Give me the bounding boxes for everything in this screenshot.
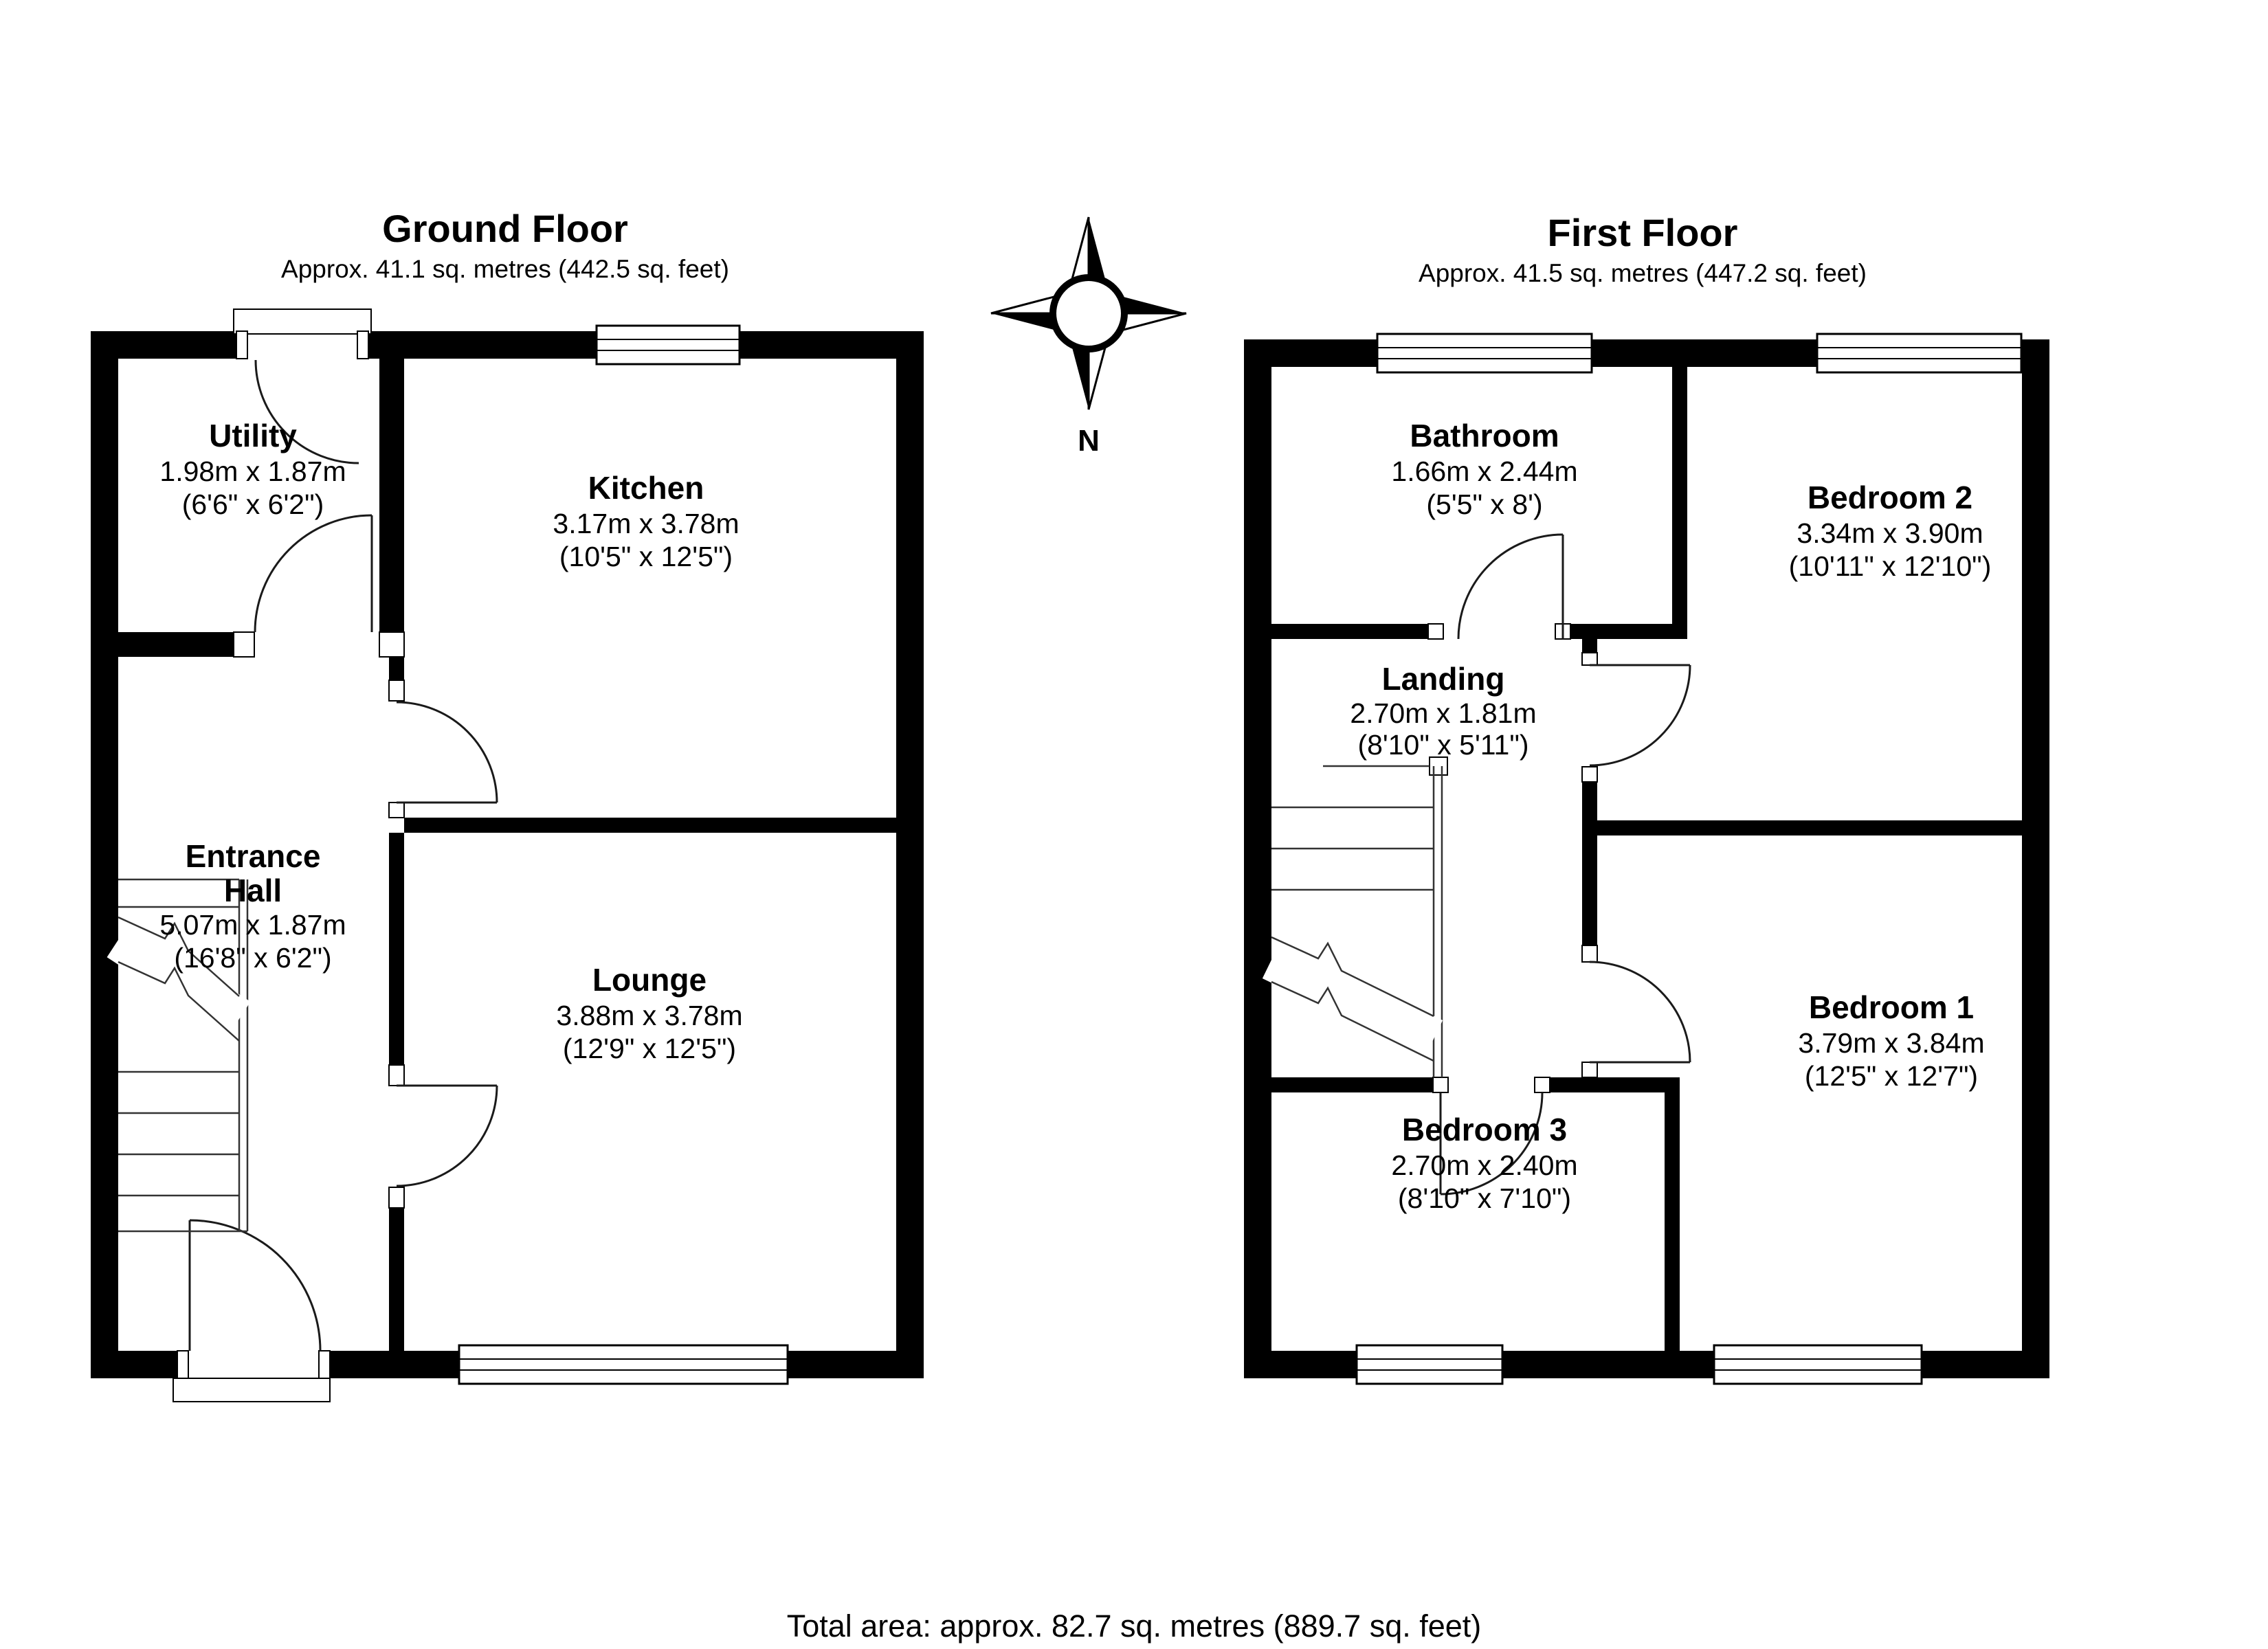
bedroom2-window xyxy=(1817,334,2021,372)
svg-text:1.66m x 2.44m: 1.66m x 2.44m xyxy=(1391,456,1577,487)
front-door xyxy=(190,1220,320,1351)
room-label-entrance-hall: Entrance Hall 5.07m x 1.87m (16'8" x 6'2… xyxy=(159,838,346,974)
room-label-bathroom: Bathroom 1.66m x 2.44m (5'5" x 8') xyxy=(1391,418,1577,520)
first-floor-stairs xyxy=(1271,766,1442,1077)
svg-text:3.17m x 3.78m: 3.17m x 3.78m xyxy=(553,508,739,539)
room-label-utility: Utility 1.98m x 1.87m (6'6" x 6'2") xyxy=(159,418,346,520)
first-floor-area: Approx. 41.5 sq. metres (447.2 sq. feet) xyxy=(1419,259,1867,287)
lounge-door xyxy=(397,1086,497,1186)
svg-text:(8'10" x 5'11"): (8'10" x 5'11") xyxy=(1357,729,1528,761)
svg-text:(12'5" x 12'7"): (12'5" x 12'7") xyxy=(1805,1060,1978,1092)
bedroom2-door xyxy=(1590,665,1690,765)
kitchen-window xyxy=(597,326,740,364)
room-label-landing: Landing 2.70m x 1.81m (8'10" x 5'11") xyxy=(1350,661,1536,761)
ground-floor-title: Ground Floor xyxy=(382,207,628,250)
room-label-lounge: Lounge 3.88m x 3.78m (12'9" x 12'5") xyxy=(556,962,742,1064)
compass-north-label: N xyxy=(1078,424,1100,458)
front-door-frame xyxy=(173,1378,330,1402)
svg-text:Lounge: Lounge xyxy=(592,962,707,998)
room-label-bedroom2: Bedroom 2 3.34m x 3.90m (10'11" x 12'10"… xyxy=(1789,480,1992,582)
utility-exterior-door-frame xyxy=(234,309,371,334)
bedroom1-window xyxy=(1714,1345,1922,1384)
svg-text:Landing: Landing xyxy=(1382,661,1505,697)
svg-text:(5'5" x 8'): (5'5" x 8') xyxy=(1426,489,1542,520)
svg-text:5.07m x 1.87m: 5.07m x 1.87m xyxy=(159,909,346,941)
ground-floor-area: Approx. 41.1 sq. metres (442.5 sq. feet) xyxy=(281,255,729,283)
room-label-kitchen: Kitchen 3.17m x 3.78m (10'5" x 12'5") xyxy=(553,470,739,572)
bathroom-door xyxy=(1458,535,1563,639)
svg-text:(10'11" x 12'10"): (10'11" x 12'10") xyxy=(1789,550,1992,582)
compass-rose-icon: N xyxy=(991,217,1186,458)
svg-text:(10'5" x 12'5"): (10'5" x 12'5") xyxy=(559,541,733,572)
svg-text:Bedroom 3: Bedroom 3 xyxy=(1402,1112,1567,1147)
svg-text:3.88m x 3.78m: 3.88m x 3.78m xyxy=(556,1000,742,1031)
kitchen-door xyxy=(397,702,497,803)
svg-text:1.98m x 1.87m: 1.98m x 1.87m xyxy=(159,456,346,487)
svg-text:Kitchen: Kitchen xyxy=(588,470,704,506)
floorplan-drawing: Ground Floor Approx. 41.1 sq. metres (44… xyxy=(0,0,2268,1649)
svg-text:(8'10" x 7'10"): (8'10" x 7'10") xyxy=(1398,1182,1571,1214)
utility-door xyxy=(255,515,372,632)
room-label-bedroom1: Bedroom 1 3.79m x 3.84m (12'5" x 12'7") xyxy=(1798,989,1984,1092)
first-floor-title: First Floor xyxy=(1548,211,1738,254)
svg-text:Hall: Hall xyxy=(224,873,282,908)
floorplan-page: Ground Floor Approx. 41.1 sq. metres (44… xyxy=(0,0,2268,1649)
svg-text:Bathroom: Bathroom xyxy=(1410,418,1559,453)
svg-text:(12'9" x 12'5"): (12'9" x 12'5") xyxy=(563,1033,736,1064)
bedroom1-door xyxy=(1590,962,1690,1062)
svg-text:Bedroom 2: Bedroom 2 xyxy=(1808,480,1972,515)
total-area-label: Total area: approx. 82.7 sq. metres (889… xyxy=(787,1608,1482,1644)
bathroom-window xyxy=(1377,334,1592,372)
svg-text:2.70m x 1.81m: 2.70m x 1.81m xyxy=(1350,697,1536,729)
ground-floor-plan: Ground Floor Approx. 41.1 sq. metres (44… xyxy=(91,207,924,1402)
bedroom3-window xyxy=(1357,1345,1502,1384)
svg-text:Entrance: Entrance xyxy=(186,838,321,874)
svg-text:(6'6" x 6'2"): (6'6" x 6'2") xyxy=(182,489,324,520)
svg-text:2.70m x 2.40m: 2.70m x 2.40m xyxy=(1391,1149,1577,1181)
svg-text:3.79m x 3.84m: 3.79m x 3.84m xyxy=(1798,1027,1984,1059)
first-floor-plan: First Floor Approx. 41.5 sq. metres (447… xyxy=(1244,211,2049,1384)
svg-text:Bedroom 1: Bedroom 1 xyxy=(1809,989,1974,1025)
svg-text:3.34m x 3.90m: 3.34m x 3.90m xyxy=(1797,517,1983,549)
svg-text:Utility: Utility xyxy=(209,418,297,453)
svg-text:(16'8" x 6'2"): (16'8" x 6'2") xyxy=(174,942,331,974)
room-label-bedroom3: Bedroom 3 2.70m x 2.40m (8'10" x 7'10") xyxy=(1391,1112,1577,1214)
lounge-window xyxy=(459,1345,788,1384)
